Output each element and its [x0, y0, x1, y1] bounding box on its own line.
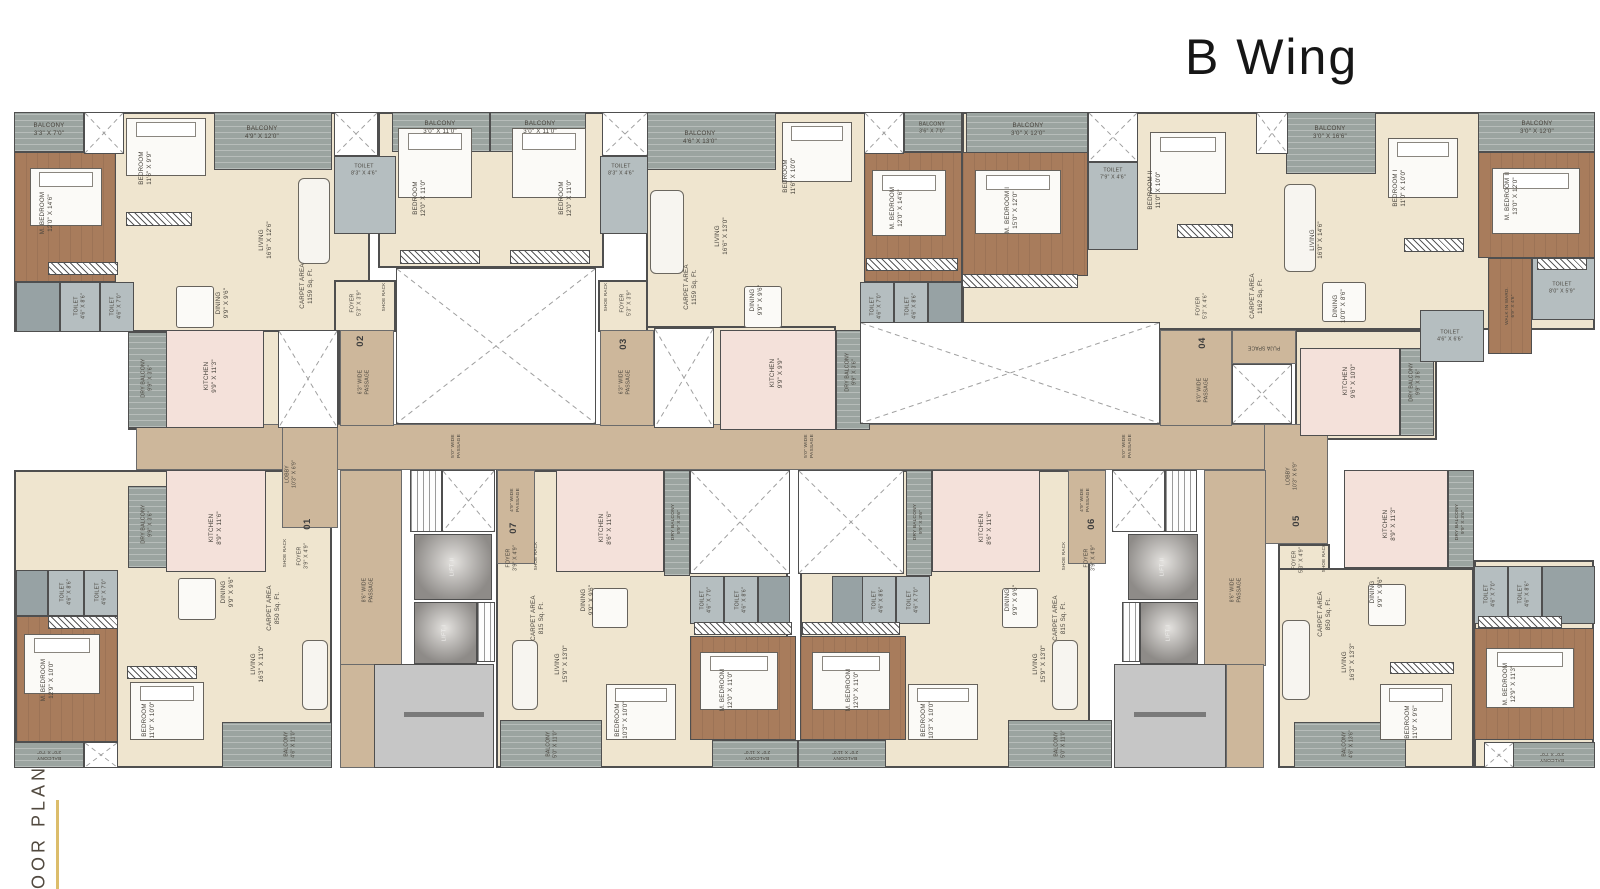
room-label: BEDROOM 11'6" X 10'0" — [782, 157, 798, 194]
room-label: CARPET AREA 815 Sq. Ft. — [1052, 595, 1068, 640]
room-label: BEDROOM 10'3" X 10'0" — [614, 701, 630, 739]
duct — [1112, 470, 1165, 532]
room-label: 8'6" WIDE PASSAGE — [362, 578, 375, 603]
room-label: FOYER 5'3" X 4'9" — [1291, 547, 1305, 573]
room-label: M. BEDROOM 12'0" X 14'6" — [39, 192, 55, 235]
bed-furniture — [512, 128, 586, 198]
toilet-wet — [16, 282, 60, 332]
duct — [1256, 112, 1288, 154]
room-label: TOILET 4'6" X 8'6" — [1517, 581, 1531, 607]
room-label: KITCHEN 8'9" X 11'3" — [1382, 507, 1398, 540]
lift-label: LIFT I — [441, 625, 448, 642]
room-label: BEDROOM 11'0" X 9'6" — [1404, 705, 1420, 738]
wardrobe — [126, 212, 192, 226]
room-label: 4'9" WIDE PASSAGE — [510, 488, 522, 512]
room-label: TOILET 4'6" X 7'0" — [699, 587, 713, 613]
room-label: DINING 9'9" X 9'6" — [1369, 577, 1385, 607]
room-label: BALCONY 3'0" X 12'0" — [1520, 120, 1554, 136]
duct-cross-icon — [799, 471, 903, 573]
room-label: DRY BALCONY 9'9" X 3'6" — [671, 504, 683, 540]
room-label: DINING 9'9" X 9'6" — [1004, 585, 1020, 615]
duct-cross-icon — [279, 331, 337, 427]
room-label: TOILET 4'6" X 6'6" — [1437, 329, 1463, 343]
room-label: M. BEDROOM 12'9" X 11'3" — [1502, 663, 1518, 706]
room-label: BALCONY 5'0" X 11'0" — [1054, 730, 1067, 758]
room-label: TOILET 4'6" X 7'0" — [869, 293, 883, 319]
room-label: TOILET 4'6" X 8'6" — [904, 293, 918, 319]
bed-furniture — [700, 652, 778, 710]
room-label: TOILET 4'6" X 7'0" — [906, 587, 920, 613]
duct — [1232, 364, 1292, 424]
room-label: SHOE RACK — [603, 283, 609, 312]
room-label: CARPET AREA 850 Sq. Ft. — [1317, 591, 1333, 636]
duct-cross-icon — [1485, 743, 1513, 767]
room-label: TOILET 8'0" X 5'9" — [1549, 281, 1575, 295]
room-label: BEDROOM 12'0" X 11'0" — [558, 179, 574, 216]
duct — [602, 112, 648, 156]
room-label: BALCONY 3'3" X 7'0" — [34, 122, 65, 138]
room-label: TOILET 8'3" X 4'6" — [608, 163, 634, 177]
room-label: LOBBY 10'3" X 6'9" — [1286, 462, 1299, 490]
caption-accent-line — [56, 800, 59, 889]
room-label: BALCONY 2'0" X 11'0" — [832, 748, 859, 760]
room-label: FOYER 5'3" X 3'9" — [619, 290, 633, 316]
room-label: TOILET 4'6" X 7'0" — [109, 293, 123, 319]
wardrobe — [866, 258, 958, 271]
stair-lobby-1 — [340, 664, 376, 768]
room-label: 8'6" WIDE PASSAGE — [1230, 578, 1243, 603]
wardrobe — [127, 666, 197, 679]
wardrobe — [400, 250, 480, 264]
wardrobe — [694, 622, 792, 635]
toilet-wet — [16, 570, 48, 616]
room-label: BALCONY 3'0" X 11'0" — [523, 120, 556, 136]
bed-furniture — [398, 128, 472, 198]
passage-core2 — [1204, 470, 1266, 666]
room-label: FOYER 5'3" X 4'6" — [1195, 293, 1209, 319]
room-label: KITCHEN 8'6" X 11'6" — [598, 511, 614, 544]
room-label: TOILET 4'6" X 8'6" — [871, 587, 885, 613]
table-furniture — [178, 578, 216, 620]
room-label: TOILET 4'6" X 8'6" — [73, 293, 87, 319]
room-label: 6'3" WIDE PASSAGE — [619, 370, 632, 395]
duct-cross-icon — [1233, 365, 1291, 423]
room-label: BALCONY 3'0" X 11'0" — [423, 120, 456, 136]
room-label: 4'9" WIDE PASSAGE — [1080, 488, 1092, 512]
room-label: LIVING 16'6" X 13'0" — [714, 217, 730, 255]
room-label: BEDROOM I 11'0" X 10'0" — [1392, 169, 1408, 206]
room-label: SHOE RACK — [1321, 544, 1327, 573]
sofa-furniture — [650, 190, 684, 274]
duct-cross-icon — [335, 113, 377, 155]
duct-cross-icon — [865, 113, 903, 153]
duct-cross-icon — [655, 329, 713, 427]
room-label: SHOE RACK — [1061, 542, 1067, 571]
room-label: WALK IN WARD. 6'9" X 4'6" — [1504, 287, 1516, 325]
sofa-furniture — [302, 640, 328, 710]
shaft — [477, 602, 495, 662]
unit-number: 04 — [1197, 337, 1209, 349]
room-label: 6'3" WIDE PASSAGE — [358, 370, 371, 395]
duct-cross-icon — [85, 113, 123, 153]
room-label: SHOE RACK — [381, 283, 387, 312]
lift-label: LIFT II — [449, 558, 456, 577]
room-label: LIVING 16'3" X 11'0" — [250, 645, 266, 682]
duct — [84, 112, 124, 154]
room-label: DINING 10'0" X 8'6" — [1332, 289, 1348, 323]
table-furniture — [176, 286, 214, 328]
room-label: TOILET 4'6" X 8'6" — [734, 587, 748, 613]
duct-cross-icon — [85, 743, 117, 767]
duct — [690, 470, 790, 574]
wardrobe — [962, 274, 1078, 288]
unit-number: 01 — [302, 518, 314, 530]
toilet-wet — [758, 576, 790, 624]
duct — [334, 112, 378, 156]
room-label: LIVING 15'9" X 13'0" — [1032, 645, 1048, 683]
light-well — [860, 322, 1160, 424]
room-label: BALCONY 5'0" X 11'0" — [546, 730, 559, 758]
shaft — [1122, 602, 1140, 662]
duct — [1088, 112, 1138, 162]
room-label: CARPET AREA 1159 Sq. Ft. — [299, 263, 315, 308]
room-label: CARPET AREA 1159 Sq. Ft. — [683, 264, 699, 309]
unit-number: 03 — [618, 338, 630, 350]
wardrobe — [1404, 238, 1464, 252]
room-label: LIVING 16'3" X 13'3" — [1341, 643, 1357, 681]
room-label: BALCONY 3'6" X 7'0" — [919, 121, 945, 135]
room-label: CARPET AREA 1162 Sq. Ft. — [1249, 273, 1265, 318]
wardrobe — [510, 250, 590, 264]
room-label: M. BEDROOM 12'9" X 10'0" — [40, 659, 56, 702]
room-label: PUJA SPACE — [1248, 344, 1280, 351]
room-label: CARPET AREA 850 Sq. Ft. — [266, 585, 282, 630]
room-label: M. BEDROOM II 13'0" X 12'0" — [1504, 172, 1520, 220]
room-label: M. BEDROOM 12'0" X 11'0" — [845, 669, 861, 712]
floor-plan-page: B Wing 02030401070605BALCONY 3'3" X 7'0"… — [0, 0, 1600, 889]
room-label: BEDROOM 10'3" X 10'0" — [920, 701, 936, 739]
sofa-furniture — [298, 178, 330, 264]
duct — [1484, 742, 1514, 768]
bed-furniture — [1486, 648, 1574, 708]
room-label: M. BEDROOM 12'0" X 14'6" — [889, 187, 905, 230]
room-label: FOYER 5'3" X 3'9" — [349, 290, 363, 316]
room-label: KITCHEN 9'9" X 11'3" — [203, 359, 219, 392]
room-label: DRY BALCONY 9'9" X 3'6" — [1408, 362, 1422, 401]
wardrobe — [1478, 616, 1562, 628]
room-label: DRY BALCONY 9'9" X 3'6" — [844, 352, 858, 391]
room-label: BALCONY 3'0" X 16'6" — [1313, 125, 1347, 141]
room-label: KITCHEN 9'9" X 9'9" — [769, 358, 785, 388]
room-label: TOILET 4'6" X 7'0" — [94, 579, 108, 605]
duct-cross-icon — [1257, 113, 1287, 153]
floor-plan-caption: FLOOR PLAN — [29, 764, 50, 889]
balcony — [222, 722, 332, 768]
passage-core1 — [340, 470, 402, 666]
table-furniture — [592, 588, 628, 628]
duct — [798, 470, 904, 574]
unit-number: 02 — [355, 335, 367, 347]
room-label: DRY BALCONY 9'9" X 3'6" — [140, 358, 154, 397]
wardrobe — [1390, 662, 1454, 674]
sofa-furniture — [1282, 620, 1310, 700]
duct-cross-icon — [1113, 471, 1164, 531]
room-label: DRY BALCONY 9'9" X 3'6" — [140, 504, 154, 543]
lift-label: LIFT I — [1165, 625, 1172, 642]
room-label: DINING 9'9" X 9'6" — [220, 577, 236, 607]
rail-furniture — [404, 712, 484, 717]
room-label: SHOE RACK — [282, 539, 288, 568]
room-label: BEDROOM 11'6" X 9'9" — [138, 151, 154, 184]
duct — [442, 470, 495, 532]
duct-cross-icon — [603, 113, 647, 155]
unit-number: 06 — [1086, 518, 1098, 530]
duct — [84, 742, 118, 768]
room-label: BALCONY 3'0" X 12'0" — [1011, 122, 1045, 138]
duct — [278, 330, 338, 428]
room-label: M. BEDROOM I 15'0" X 12'0" — [1004, 187, 1020, 233]
duct-cross-icon — [1089, 113, 1137, 161]
room-label: TOILET 4'6" X 7'0" — [1483, 581, 1497, 607]
room-label: LIVING 16'0" X 14'6" — [1309, 221, 1325, 259]
sofa-furniture — [512, 640, 538, 710]
stair-lobby-2 — [1226, 664, 1264, 768]
room-label: KITCHEN 9'6" X 10'0" — [1342, 364, 1358, 398]
room-label: FOYER 3'9" X 4'9" — [505, 545, 519, 571]
shaft — [1165, 470, 1197, 532]
room-label: DINING 9'9" X 9'6" — [215, 288, 231, 318]
room-label: KITCHEN 8'6" X 11'6" — [978, 511, 994, 544]
room-label: BALCONY 4'6" X 11'0" — [284, 730, 297, 758]
room-label: DINING 9'9" X 9'6" — [580, 585, 596, 615]
room-label: BEDROOM II 11'0" X 10'0" — [1147, 170, 1163, 209]
room-label: FOYER 3'9" X 4'9" — [1083, 545, 1097, 571]
light-well — [396, 268, 596, 424]
rail-furniture — [1134, 712, 1206, 717]
room-label: DINING 9'9" X 9'6" — [749, 285, 765, 315]
duct-cross-icon — [861, 323, 1159, 423]
toilet-wet — [832, 576, 864, 624]
room-label: BALCONY 2'0" X 11'0" — [744, 748, 771, 760]
room-label: LIVING 16'6" X 12'6" — [258, 221, 274, 259]
room-label: BALCONY 4'9" X 12'0" — [245, 125, 279, 141]
duct — [654, 328, 714, 428]
room-label: 5'0" WIDE PASSAGE — [451, 434, 463, 458]
floor-plan-canvas: 02030401070605BALCONY 3'3" X 7'0"M. BEDR… — [0, 0, 1600, 889]
room-label: 6'0" WIDE PASSAGE — [1197, 378, 1210, 403]
room-label: TOILET 7'9" X 4'6" — [1100, 167, 1126, 181]
room-label: BEDROOM 11'0" X 10'0" — [141, 701, 157, 738]
bed-furniture — [872, 170, 946, 236]
room-label: BALCONY 4'6" X 13'6" — [1342, 730, 1355, 758]
room-label: BEDROOM 12'0" X 11'0" — [412, 179, 428, 216]
room-label: LOBBY 10'3" X 6'9" — [285, 460, 298, 488]
wardrobe — [1537, 258, 1587, 270]
room-label: M. BEDROOM 12'0" X 11'0" — [719, 669, 735, 712]
lift-label: LIFT II — [1159, 558, 1166, 577]
room-label: LIVING 15'9" X 13'0" — [554, 645, 570, 683]
wardrobe — [1177, 224, 1233, 238]
unit-number: 07 — [508, 522, 520, 534]
room-label: DRY BALCONY 9'9" X 3'6" — [1455, 504, 1467, 540]
duct-cross-icon — [397, 269, 595, 423]
room-label: FOYER 3'9" X 4'9" — [296, 543, 310, 569]
room-label: BALCONY 4'6" X 13'0" — [683, 130, 717, 146]
duct — [864, 112, 904, 154]
room-label: 5'0" WIDE PASSAGE — [1122, 434, 1134, 458]
room-label: BALCONY 2'0" X 7'0" — [37, 748, 61, 760]
wardrobe — [48, 262, 118, 275]
room-label: TOILET 8'3" X 4'6" — [351, 163, 377, 177]
room-label: CARPET AREA 815 Sq. Ft. — [530, 595, 546, 640]
room-label: BALCONY 2'0" X 7'0" — [1540, 750, 1564, 762]
balcony — [1286, 112, 1376, 174]
shaft — [410, 470, 442, 532]
bed-furniture — [24, 634, 100, 694]
room-label: KITCHEN 8'9" X 11'6" — [208, 511, 224, 544]
bed-furniture — [908, 684, 978, 740]
room-label: DRY BALCONY 9'9" X 3'6" — [913, 504, 925, 540]
wardrobe — [48, 616, 118, 629]
wardrobe — [802, 622, 900, 635]
room-label: 5'0" WIDE PASSAGE — [804, 434, 816, 458]
room-label: TOILET 4'6" X 8'6" — [59, 579, 73, 605]
unit-number: 05 — [1291, 515, 1303, 527]
sofa-furniture — [1052, 640, 1078, 710]
duct-cross-icon — [443, 471, 494, 531]
duct-cross-icon — [691, 471, 789, 573]
room-label: SHOE RACK — [533, 542, 539, 571]
